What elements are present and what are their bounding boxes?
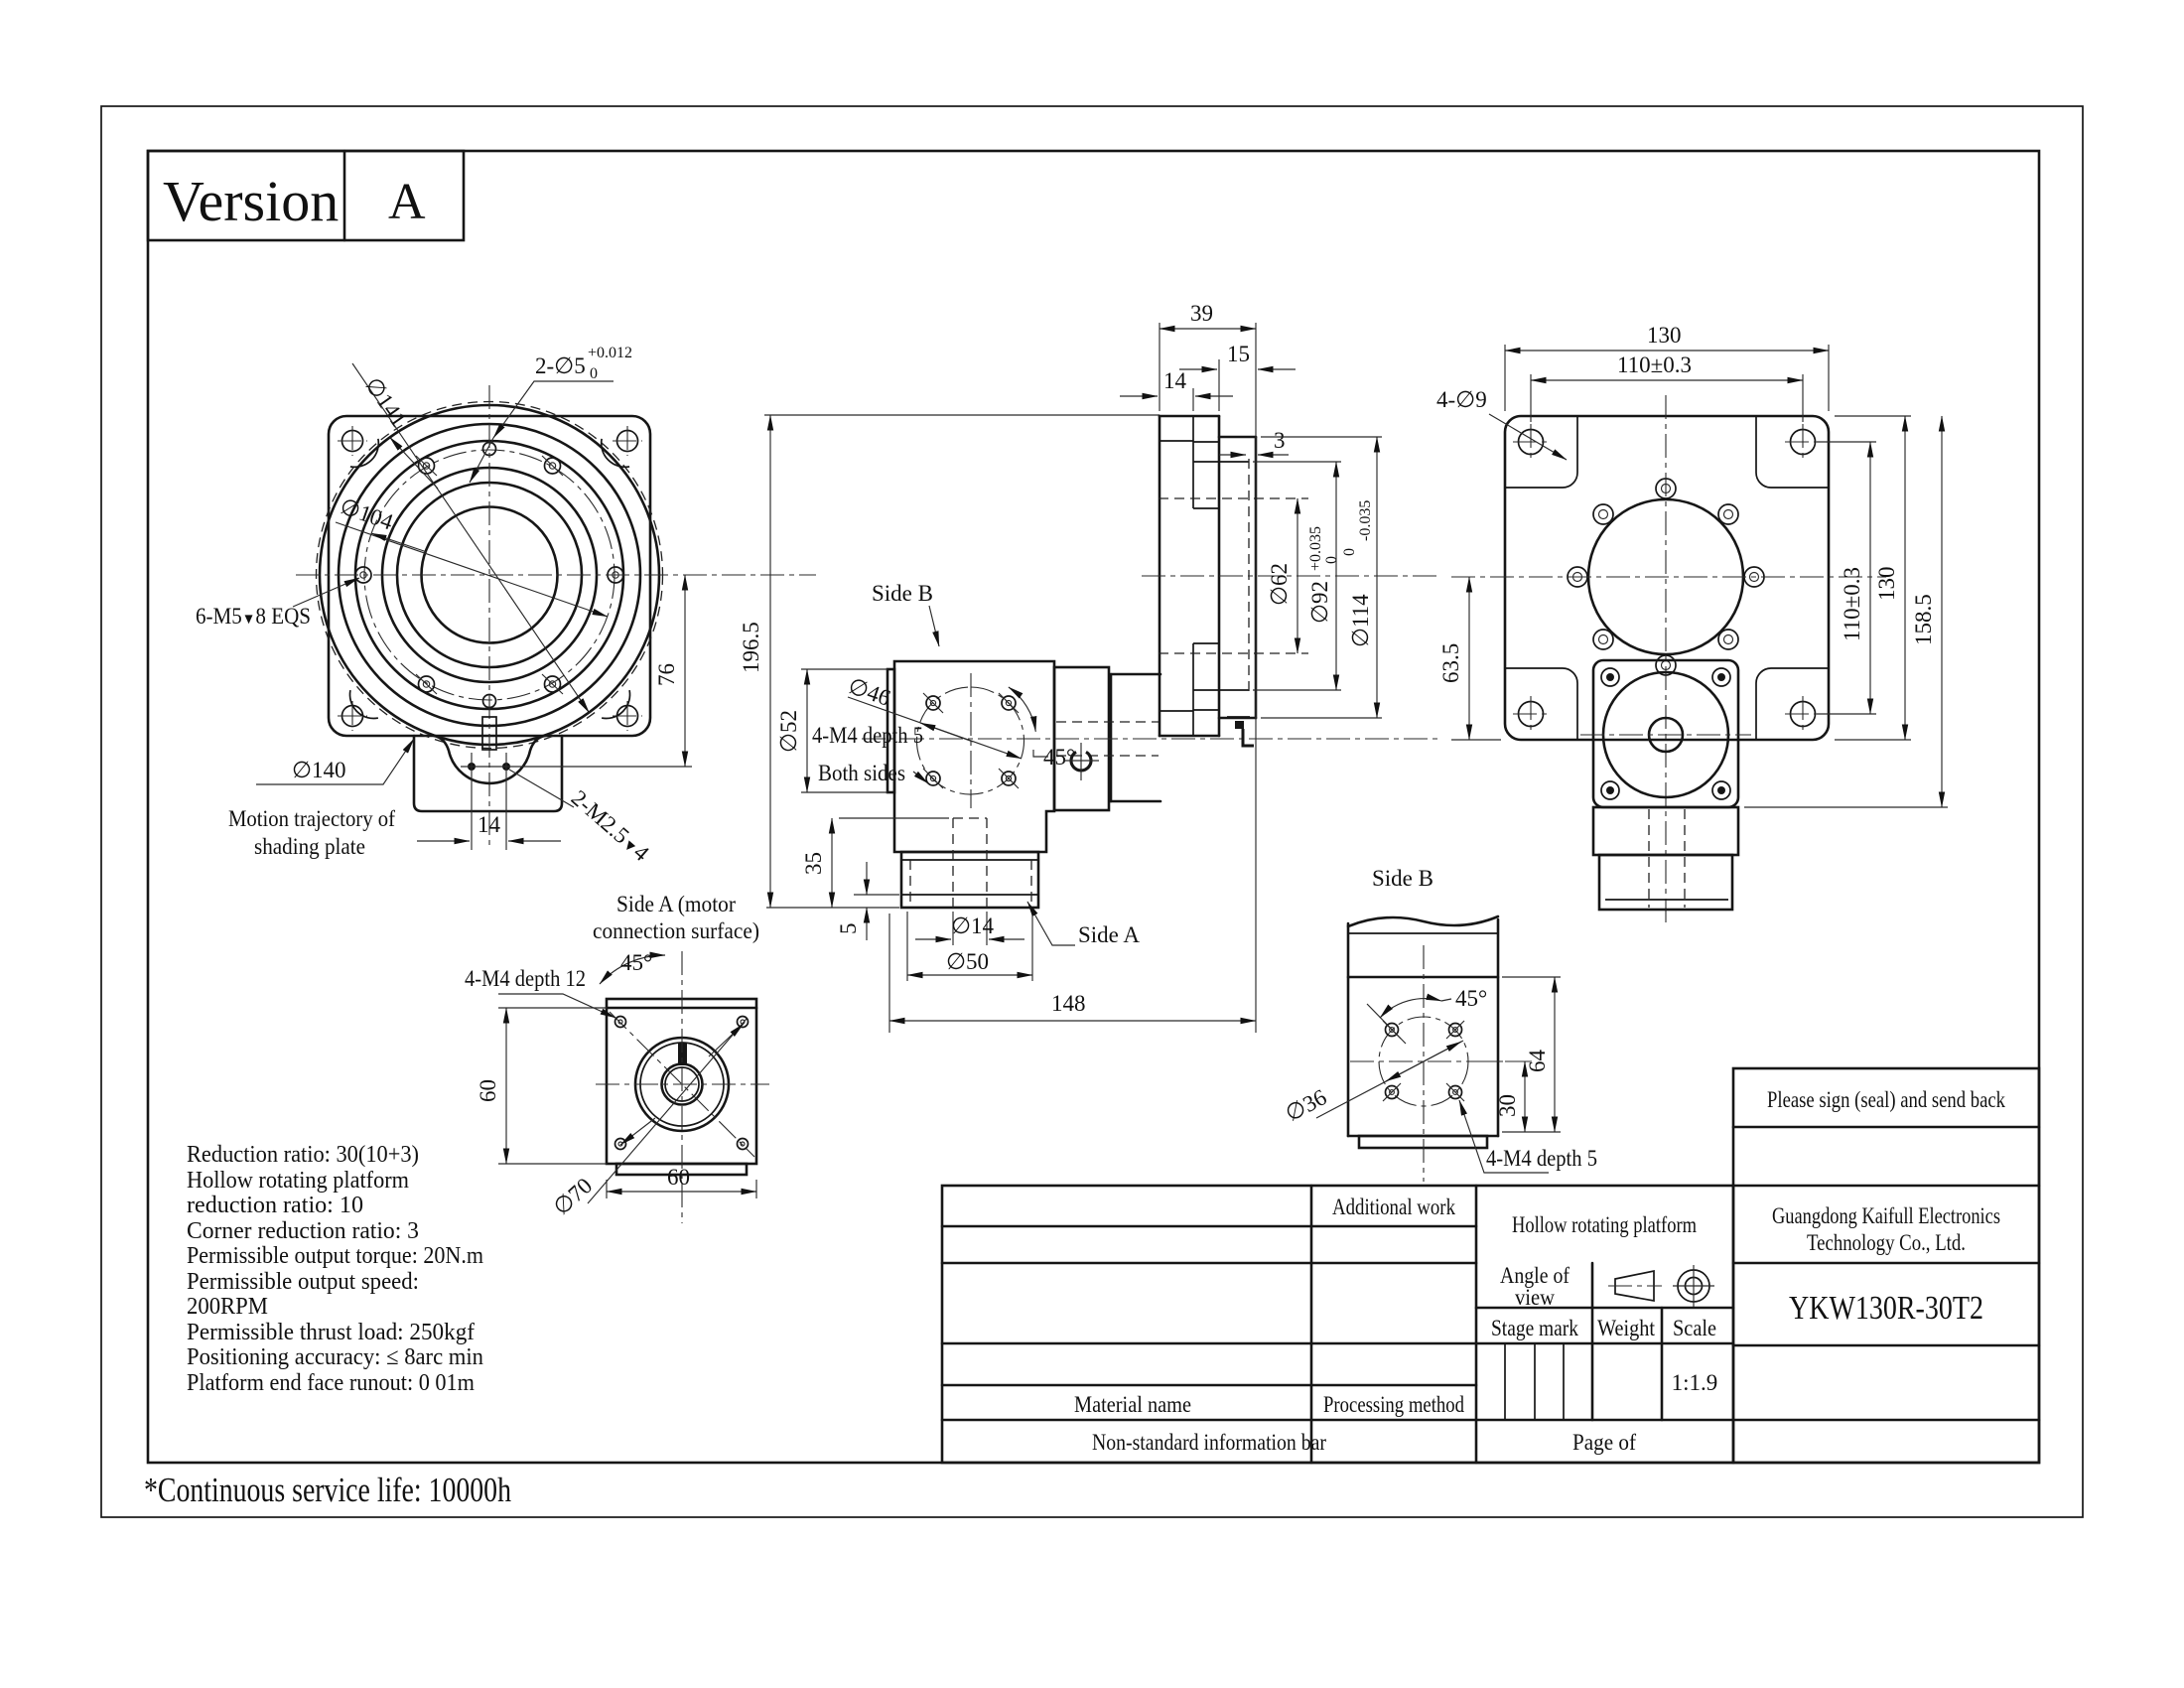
svg-text:Motion trajectory of: Motion trajectory of: [228, 806, 395, 831]
svg-text:45°: 45°: [620, 950, 652, 975]
svg-text:Hollow rotating platform: Hollow rotating platform: [1512, 1212, 1697, 1237]
svg-text:14: 14: [478, 812, 501, 837]
svg-text:60: 60: [476, 1079, 500, 1102]
svg-text:60: 60: [667, 1165, 690, 1190]
svg-text:Positioning accuracy: ≤ 8arc m: Positioning accuracy: ≤ 8arc min: [187, 1344, 483, 1370]
svg-text:shading plate: shading plate: [254, 834, 365, 859]
svg-text:Hollow rotating platform: Hollow rotating platform: [187, 1168, 409, 1194]
svg-text:∅50: ∅50: [946, 949, 989, 974]
svg-text:200RPM: 200RPM: [187, 1294, 268, 1320]
svg-text:∅92: ∅92: [1307, 581, 1332, 624]
svg-text:0: 0: [1341, 548, 1358, 556]
svg-text:0: 0: [1323, 556, 1340, 564]
svg-text:63.5: 63.5: [1438, 643, 1463, 683]
svg-text:∅52: ∅52: [776, 710, 801, 753]
svg-text:∅62: ∅62: [1267, 563, 1292, 606]
svg-text:reduction ratio: 10: reduction ratio: 10: [187, 1193, 363, 1218]
svg-text:Additional work: Additional work: [1332, 1195, 1455, 1219]
svg-text:Permissible output speed:: Permissible output speed:: [187, 1269, 419, 1295]
svg-text:+0.012: +0.012: [588, 345, 632, 361]
svg-text:-0.035: -0.035: [1357, 500, 1374, 541]
svg-text:Stage mark: Stage mark: [1491, 1316, 1578, 1340]
svg-text:39: 39: [1190, 301, 1213, 326]
svg-text:15: 15: [1227, 342, 1250, 366]
svg-text:Please sign (seal) and send ba: Please sign (seal) and send back: [1767, 1087, 2005, 1112]
svg-text:Page of: Page of: [1572, 1430, 1636, 1455]
svg-text:35: 35: [801, 852, 826, 875]
svg-text:Platform end face runout: 0 01: Platform end face runout: 0 01m: [187, 1370, 475, 1396]
svg-text:4-M4 depth 5: 4-M4 depth 5: [812, 723, 923, 748]
svg-text:Side A (motor: Side A (motor: [616, 892, 736, 916]
svg-text:Side A: Side A: [1078, 922, 1140, 947]
svg-text:4-M4 depth 12: 4-M4 depth 12: [465, 966, 586, 991]
svg-text:45°: 45°: [1455, 986, 1487, 1011]
svg-text:view: view: [1515, 1285, 1555, 1310]
svg-text:Processing method: Processing method: [1323, 1392, 1464, 1417]
svg-text:Both sides: Both sides: [818, 761, 905, 785]
svg-text:196.5: 196.5: [739, 622, 763, 673]
svg-text:Non-standard information bar: Non-standard information bar: [1092, 1430, 1326, 1455]
svg-text:Version: Version: [163, 169, 339, 233]
svg-text:0: 0: [590, 365, 598, 382]
svg-text:YKW130R-30T2: YKW130R-30T2: [1789, 1290, 1983, 1327]
svg-text:+0.035: +0.035: [1307, 526, 1324, 571]
svg-text:Corner reduction ratio: 3: Corner reduction ratio: 3: [187, 1218, 419, 1244]
svg-text:∅14: ∅14: [951, 914, 995, 938]
svg-text:2-∅5: 2-∅5: [535, 353, 586, 378]
svg-text:110±0.3: 110±0.3: [1617, 352, 1692, 377]
svg-text:130: 130: [1874, 567, 1899, 602]
svg-text:Guangdong Kaifull Electronics: Guangdong Kaifull Electronics: [1772, 1203, 2000, 1228]
svg-text:14: 14: [1163, 368, 1187, 393]
svg-text:Side B: Side B: [872, 581, 933, 606]
svg-text:130: 130: [1647, 323, 1682, 348]
svg-text:Material name: Material name: [1074, 1392, 1191, 1417]
svg-text:∅140: ∅140: [292, 758, 346, 782]
svg-text:4-∅9: 4-∅9: [1436, 387, 1487, 412]
svg-text:30: 30: [1495, 1094, 1520, 1117]
svg-text:64: 64: [1525, 1050, 1550, 1073]
svg-text:∅114: ∅114: [1348, 594, 1373, 647]
svg-text:Permissible thrust load: 250kg: Permissible thrust load: 250kgf: [187, 1320, 475, 1345]
svg-text:110±0.3: 110±0.3: [1840, 567, 1864, 641]
svg-text:3: 3: [1274, 428, 1286, 453]
svg-text:*Continuous service life: 1000: *Continuous service life: 10000h: [144, 1471, 511, 1509]
svg-text:Side B: Side B: [1372, 866, 1433, 891]
svg-text:5: 5: [836, 923, 861, 935]
svg-text:Technology Co., Ltd.: Technology Co., Ltd.: [1807, 1230, 1966, 1255]
svg-text:Permissible output torque: 20N: Permissible output torque: 20N.m: [187, 1243, 483, 1269]
svg-text:A: A: [388, 174, 426, 230]
svg-text:Reduction ratio: 30(10+3): Reduction ratio: 30(10+3): [187, 1142, 419, 1168]
svg-text:158.5: 158.5: [1911, 594, 1936, 645]
svg-text:76: 76: [654, 663, 679, 686]
svg-text:4-M4 depth 5: 4-M4 depth 5: [1486, 1146, 1597, 1171]
svg-text:connection surface): connection surface): [593, 918, 759, 943]
svg-text:1:1.9: 1:1.9: [1672, 1370, 1718, 1395]
svg-text:Scale: Scale: [1673, 1316, 1716, 1340]
svg-text:Weight: Weight: [1597, 1316, 1656, 1340]
svg-text:148: 148: [1051, 991, 1086, 1016]
